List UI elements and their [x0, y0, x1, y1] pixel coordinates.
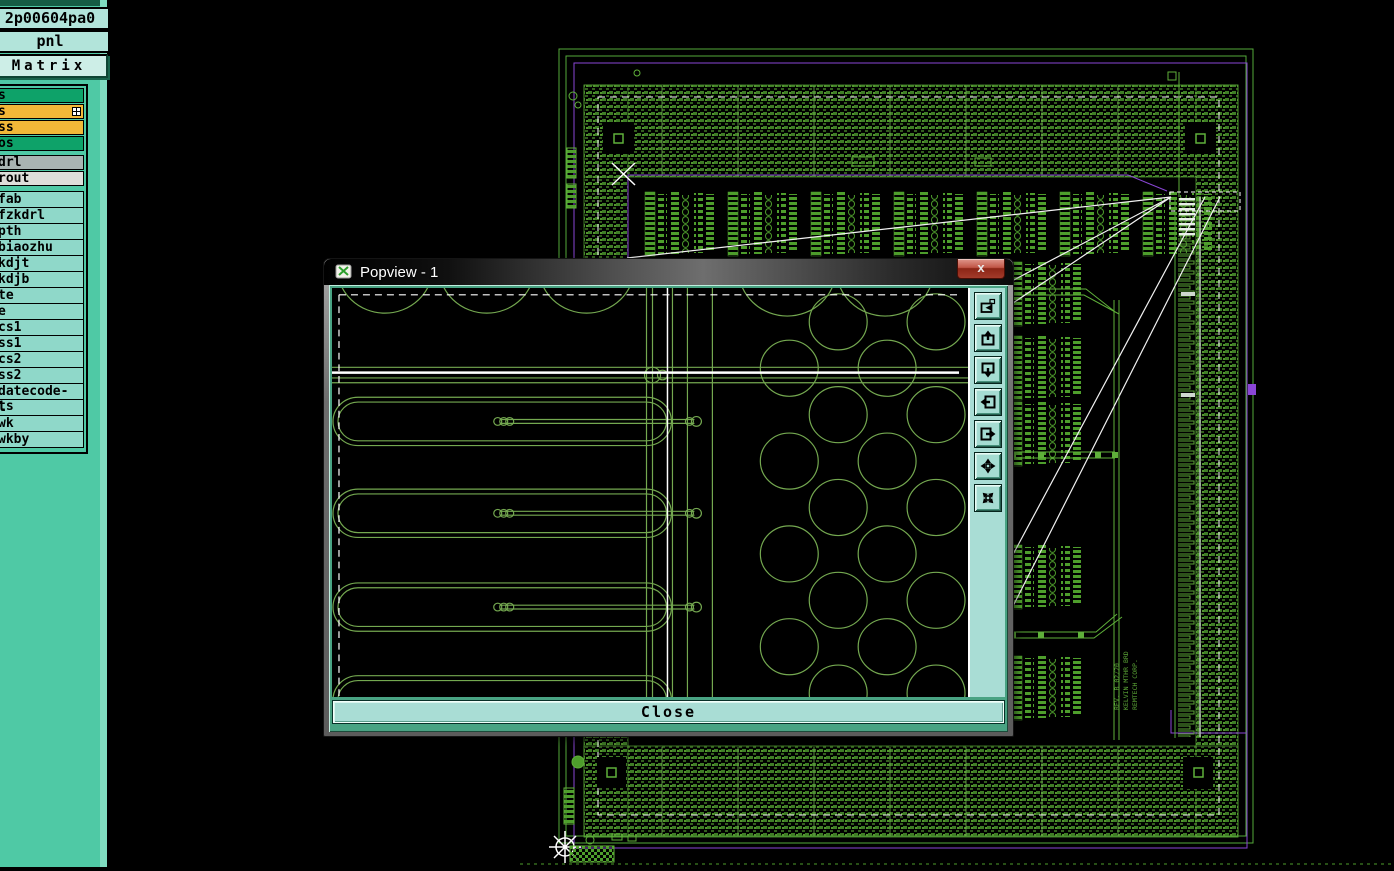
layer-status-row-2[interactable]: ss	[0, 120, 84, 135]
layer-row-wkby[interactable]: wkby	[0, 432, 83, 447]
layer-row-kdjb[interactable]: kdjb	[0, 272, 83, 288]
popview-toolbar	[968, 288, 1005, 697]
pan-right-icon[interactable]	[974, 420, 1002, 448]
layer-row-e[interactable]: e	[0, 304, 83, 320]
step-name-field[interactable]: pnl	[0, 30, 110, 53]
pan-down-icon[interactable]	[974, 356, 1002, 384]
layer-row-biaozhu[interactable]: biaozhu	[0, 240, 83, 256]
close-window-button[interactable]: x	[957, 259, 1005, 279]
layer-row-cs2[interactable]: cs2	[0, 352, 83, 368]
popview-copy-icon[interactable]	[974, 292, 1002, 320]
sidebar-top-strip	[0, 0, 107, 6]
layer-row-kdjt[interactable]: kdjt	[0, 256, 83, 272]
pan-left-icon[interactable]	[974, 388, 1002, 416]
layer-row-fab[interactable]: fab	[0, 192, 83, 208]
layer-status-rows: ssssosdrlrout	[0, 88, 84, 186]
matrix-button[interactable]: Matrix ...	[0, 54, 108, 78]
silkscreen-line-3: REMTECH CORP.	[1131, 659, 1139, 710]
zoom-expand-icon[interactable]	[974, 484, 1002, 512]
popview-close-button[interactable]: Close	[332, 700, 1005, 724]
layer-row-cs1[interactable]: cs1	[0, 320, 83, 336]
silkscreen-line-1: REV. B 02/20	[1113, 663, 1121, 710]
sidebar: 2p00604pa0 pnl Matrix ... ssssosdrlrout …	[0, 0, 107, 867]
layer-row-datecode-ts[interactable]: datecode-ts	[0, 384, 83, 400]
sidebar-edge-highlight	[100, 0, 107, 867]
layer-row-wk[interactable]: wk	[0, 416, 83, 432]
layer-status-row-4[interactable]: drl	[0, 155, 84, 170]
zoom-contract-icon[interactable]	[974, 452, 1002, 480]
popview-frame: Close	[329, 285, 1008, 732]
popview-titlebar[interactable]: Popview - 1 x	[324, 259, 1013, 285]
grid-badge-icon	[72, 107, 81, 116]
popview-title: Popview - 1	[360, 264, 438, 281]
layer-row-ss1[interactable]: ss1	[0, 336, 83, 352]
test-coupon-strip	[570, 846, 614, 862]
layer-row-ss2[interactable]: ss2	[0, 368, 83, 384]
edge-connector-fingers	[1178, 197, 1200, 737]
popview-window: Popview - 1 x	[323, 258, 1014, 737]
pan-up-icon[interactable]	[974, 324, 1002, 352]
purple-marker	[1248, 384, 1256, 395]
layer-status-row-3[interactable]: os	[0, 136, 84, 151]
layer-name-rows: fabfzkdrlpthbiaozhukdjtkdjbteecs1ss1cs2s…	[0, 191, 84, 448]
job-name-field[interactable]: 2p00604pa0	[0, 7, 110, 30]
layer-row-pth[interactable]: pth	[0, 224, 83, 240]
popview-canvas[interactable]	[332, 288, 968, 697]
layer-status-row-0[interactable]: s	[0, 88, 84, 103]
popview-window-icon	[335, 264, 353, 280]
layer-list-panel: ssssosdrlrout fabfzkdrlpthbiaozhukdjtkdj…	[0, 84, 88, 454]
layer-status-row-5[interactable]: rout	[0, 171, 84, 186]
layer-status-row-1[interactable]: s	[0, 104, 84, 119]
layer-row-fzkdrl[interactable]: fzkdrl	[0, 208, 83, 224]
popview-drawing	[332, 288, 968, 697]
layer-row-te[interactable]: te	[0, 288, 83, 304]
silkscreen-line-2: KELVIN MTHR BRD	[1122, 651, 1130, 710]
